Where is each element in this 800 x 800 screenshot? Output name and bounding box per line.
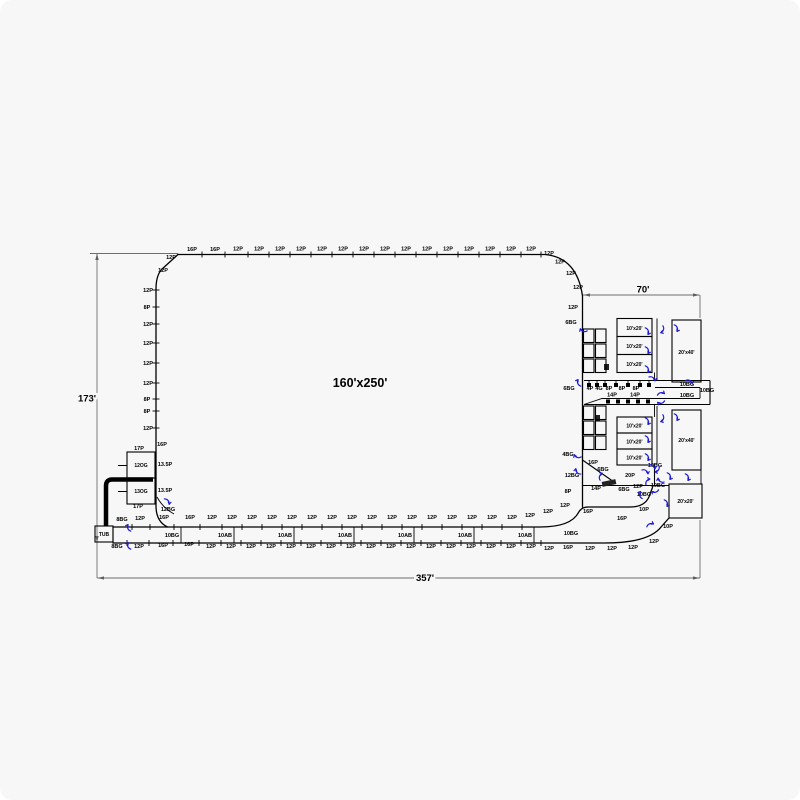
left-structure-label: 17P: [134, 446, 144, 452]
left-edge-label: 12P: [143, 381, 153, 387]
deck-top-row-label: 12P: [347, 515, 357, 521]
river-cell-label: 10AB: [398, 533, 412, 539]
dim-arrowhead: [693, 293, 700, 296]
outer-curve-label: 10P: [663, 524, 673, 530]
river-cell-label: 10AB: [518, 533, 532, 539]
locker-cell: [596, 344, 607, 358]
comb-row1-label: 4G: [595, 386, 602, 392]
comb-row1-label: 8P: [606, 386, 613, 392]
deck-bottom-row-label: 12P: [366, 544, 376, 550]
deck-top-row-label: 12P: [467, 515, 477, 521]
deck-top-row-label: 16P: [185, 515, 195, 521]
right-area-label: 8P: [565, 489, 572, 495]
dim-arrowhead: [693, 576, 700, 579]
locker-cell: [584, 359, 595, 373]
left-edge-label: 8P: [144, 409, 151, 415]
deck-bottom-row-label: 12P: [306, 544, 316, 550]
deck-bottom-row-label: 12P: [466, 544, 476, 550]
dim-arrowhead: [95, 254, 98, 261]
flow-arrow-icon: [645, 417, 650, 425]
outer-curve-label: 12P: [607, 546, 617, 552]
left-edge-label: 12P: [143, 426, 153, 432]
top-edge-label: 12P: [422, 247, 432, 253]
room-label: TUB: [99, 532, 110, 538]
top-edge-label: 12P: [401, 247, 411, 253]
corner-label: 12P: [573, 285, 583, 291]
right-area-label: 4BG: [562, 452, 573, 458]
locker-cell: [584, 406, 595, 420]
deck-bottom-row-label: 12P: [386, 544, 396, 550]
comb-tooth: [626, 383, 630, 387]
flow-arrow-icon: [645, 327, 650, 335]
left-edge-label: 12P: [143, 322, 153, 328]
comb-tooth: [614, 383, 618, 387]
outer-curve-label: 16P: [563, 545, 573, 551]
pool-outline: [113, 255, 669, 544]
deck-bottom-row-label: 12P: [446, 544, 456, 550]
locker-cell: [584, 436, 595, 450]
locker-cell: [584, 421, 595, 435]
room-label: 12OG: [134, 463, 147, 469]
room-label: 10'x20': [626, 424, 642, 430]
deck-bottom-row-label: 12P: [486, 544, 496, 550]
river-cell-label: 10BG: [564, 531, 578, 537]
deck-top-row-label: 12P: [287, 515, 297, 521]
top-edge-label: 12P: [506, 247, 516, 253]
deck-bottom-row-label: 12P: [246, 544, 256, 550]
locker-cell: [584, 344, 595, 358]
deck-bottom-row-label: 12P: [426, 544, 436, 550]
deck-bottom-row-label: 12P: [526, 544, 536, 550]
comb-row1-label: 8P: [619, 386, 626, 392]
river-cell-label: 10AB: [278, 533, 292, 539]
right-area-label: 10BG: [651, 483, 665, 489]
right-area-label: 10BG: [680, 393, 694, 399]
deck-top-row-label: 12P: [207, 515, 217, 521]
river-cell-label: 10AB: [218, 533, 232, 539]
flow-arrow-icon: [576, 379, 581, 387]
dim-arrowhead: [584, 293, 591, 296]
locker-cell: [596, 329, 607, 343]
deck-top-row-label: 12P: [447, 515, 457, 521]
right-area-label: 12BG: [565, 473, 579, 479]
top-edge-label: 12P: [275, 247, 285, 253]
right-area-label: 12P: [568, 305, 578, 311]
left-edge-label: 12P: [143, 288, 153, 294]
comb-tooth: [606, 400, 610, 404]
room-label: 10'x20': [626, 456, 642, 462]
flow-arrow-icon: [645, 346, 650, 354]
outer-curve-label: 12P: [628, 545, 638, 551]
comb-row2-label: 14P: [607, 393, 617, 399]
room-label: 10'x20': [626, 440, 642, 446]
comb-row2-label: 14P: [630, 393, 640, 399]
inner-curve-label: 16P: [617, 516, 627, 522]
deck-top-row-label: 12P: [487, 515, 497, 521]
left-edge-label: 8P: [144, 397, 151, 403]
top-edge-label: 12P: [526, 247, 536, 253]
left-structure-label: 17P: [133, 504, 143, 510]
dim-label-wing: 70': [637, 285, 650, 296]
comb-tooth: [646, 400, 650, 404]
flow-arrow-icon: [646, 522, 654, 527]
comb-tooth: [636, 400, 640, 404]
river-cell-label: 10AB: [338, 533, 352, 539]
deck-bottom-row-label: 12P: [506, 544, 516, 550]
comb-tooth: [616, 400, 620, 404]
right-area-label: 6BG: [563, 386, 574, 392]
comb-tooth: [647, 383, 651, 387]
right-area-label: 14P: [591, 486, 601, 492]
site-plan-canvas[interactable]: 173' 357' 70' 160'x250' 10'x20'10'x20'10…: [0, 0, 800, 800]
right-area-label: 12P: [633, 484, 643, 490]
deck-bottom-row-label: 16P: [184, 542, 194, 548]
top-edge-label: 12P: [338, 247, 348, 253]
deck-outer-line: [113, 518, 669, 543]
top-edge-label: 12P: [233, 247, 243, 253]
flow-arrow-icon: [659, 415, 666, 423]
locker-cell: [596, 436, 607, 450]
top-edge-label: 16P: [187, 247, 197, 253]
flow-arrow-icon: [645, 453, 650, 461]
flow-arrow-icon: [659, 326, 666, 334]
right-area-label: 16P: [588, 460, 598, 466]
deck-bottom-row-label: 12P: [226, 544, 236, 550]
left-edge-label: 8P: [144, 305, 151, 311]
deck-bottom-row-label: 12P: [346, 544, 356, 550]
deck-top-row-label: 12P: [367, 515, 377, 521]
left-structure-label: 12BG: [161, 507, 175, 513]
pool-area-label: 160'x250': [333, 376, 388, 390]
inner-curve-label: 16P: [583, 509, 593, 515]
room-label: 10'x20': [626, 344, 642, 350]
flow-arrow-icon: [652, 490, 659, 494]
flow-arrow-icon: [657, 391, 664, 395]
deck-top-row-label: 12P: [507, 515, 517, 521]
outer-curve-label: 12P: [585, 546, 595, 552]
deck-top-row-label: 12P: [267, 515, 277, 521]
flow-arrow-icon: [685, 473, 690, 481]
deck-top-row-label: 12P: [327, 515, 337, 521]
dim-label-width: 357': [416, 573, 434, 584]
corner-label: 12P: [566, 271, 576, 277]
deck-top-row-label: 16P: [159, 515, 169, 521]
locker-cell: [584, 329, 595, 343]
deck-top-row-label: 12P: [427, 515, 437, 521]
top-edge-label: 12P: [254, 247, 264, 253]
inner-curve-label: 12P: [560, 503, 570, 509]
top-edge-label: 12P: [359, 247, 369, 253]
room-label: 10'x20': [626, 326, 642, 332]
deck-bottom-row-label: 16P: [158, 543, 168, 549]
flow-arrow-icon: [597, 472, 604, 480]
deck-bottom-row-label: 12P: [286, 544, 296, 550]
corner-label: 12P: [544, 251, 554, 257]
inner-curve-label: 10P: [639, 507, 649, 513]
inner-curve-label: 12P: [525, 513, 535, 519]
inner-curve-label: 12P: [543, 509, 553, 515]
right-area-label: 10BG: [637, 492, 651, 498]
deck-bottom-row-label: 12P: [134, 544, 144, 550]
left-structure-label: 13.5P: [158, 462, 173, 468]
deck-bottom-row-label: 8BG: [111, 544, 122, 550]
deck-top-row-label: 12P: [307, 515, 317, 521]
flow-arrow-icon: [667, 472, 672, 480]
right-area-label: 20P: [625, 473, 635, 479]
right-area-label: 6BG: [565, 320, 576, 326]
pool-edge-left: [156, 255, 178, 528]
wing-connectors: [655, 319, 702, 485]
deck-top-row-label: 12P: [227, 515, 237, 521]
top-edge-label: 12P: [317, 247, 327, 253]
comb-tooth: [626, 400, 630, 404]
corner-label: 12P: [158, 268, 168, 274]
top-edge-label: 12P: [380, 247, 390, 253]
deck-top-row-label: 12P: [135, 516, 145, 522]
deck-inner-line: [113, 488, 653, 528]
flow-arrow-icon: [645, 435, 650, 443]
outer-curve-label: 12P: [544, 546, 554, 552]
room-label: 20'x40': [678, 438, 694, 444]
top-edge-label: 12P: [296, 247, 306, 253]
left-structure-label: 13.5P: [158, 488, 173, 494]
river-cell-label: 10AB: [458, 533, 472, 539]
deck-top-row-label: 12P: [387, 515, 397, 521]
left-structure-label: 16P: [157, 442, 167, 448]
flow-arrow-icon: [674, 324, 679, 332]
top-edge-label: 16P: [210, 247, 220, 253]
river-cell-label: 10BG: [165, 533, 179, 539]
left-edge-label: 12P: [143, 341, 153, 347]
flow-arrow-icon: [573, 453, 581, 460]
top-edge-label: 12P: [485, 247, 495, 253]
flow-arrow-icon: [126, 524, 131, 532]
deck-bottom-row-label: 12P: [266, 544, 276, 550]
locker-cell: [596, 421, 607, 435]
corner-label: 12P: [166, 255, 176, 261]
room-label: 20'x40': [678, 350, 694, 356]
generated-layer: 10'x20'10'x20'10'x20'20'x40'10'x20'10'x2…: [95, 247, 714, 553]
dim-arrowhead: [98, 576, 105, 579]
room-label: 13OG: [134, 489, 147, 495]
flow-arrow-icon: [645, 365, 650, 373]
deck-bottom-row-label: 12P: [206, 544, 216, 550]
comb-row1-label: 8P: [633, 386, 640, 392]
deck-top-row-label: 12P: [407, 515, 417, 521]
right-area-label: 6BG: [618, 487, 629, 493]
flow-arrow-icon: [164, 497, 171, 505]
deck-top-row-label: 12P: [247, 515, 257, 521]
top-edge-label: 12P: [443, 247, 453, 253]
left-edge-label: 12P: [143, 361, 153, 367]
drawing-viewport: 173' 357' 70' 160'x250' 10'x20'10'x20'10…: [0, 0, 800, 800]
slide-tube: [106, 480, 153, 527]
dim-label-height: 173': [78, 394, 96, 405]
room-label: 20'x20': [677, 499, 693, 505]
flow-arrow-icon: [643, 477, 651, 485]
right-area-label: 6BG: [597, 467, 608, 473]
corner-label: 12P: [555, 260, 565, 266]
deck-top-row-label: 8BG: [116, 517, 127, 523]
right-area-label: 10BG: [700, 388, 714, 394]
outer-curve-label: 12P: [649, 539, 659, 545]
top-edge-label: 12P: [464, 247, 474, 253]
flow-arrow-icon: [674, 413, 679, 421]
deck-bottom-row-label: 12P: [406, 544, 416, 550]
comb-row1-label: 4P: [587, 386, 594, 392]
deck-bottom-row-label: 12P: [326, 544, 336, 550]
room-label: 10'x20': [626, 362, 642, 368]
